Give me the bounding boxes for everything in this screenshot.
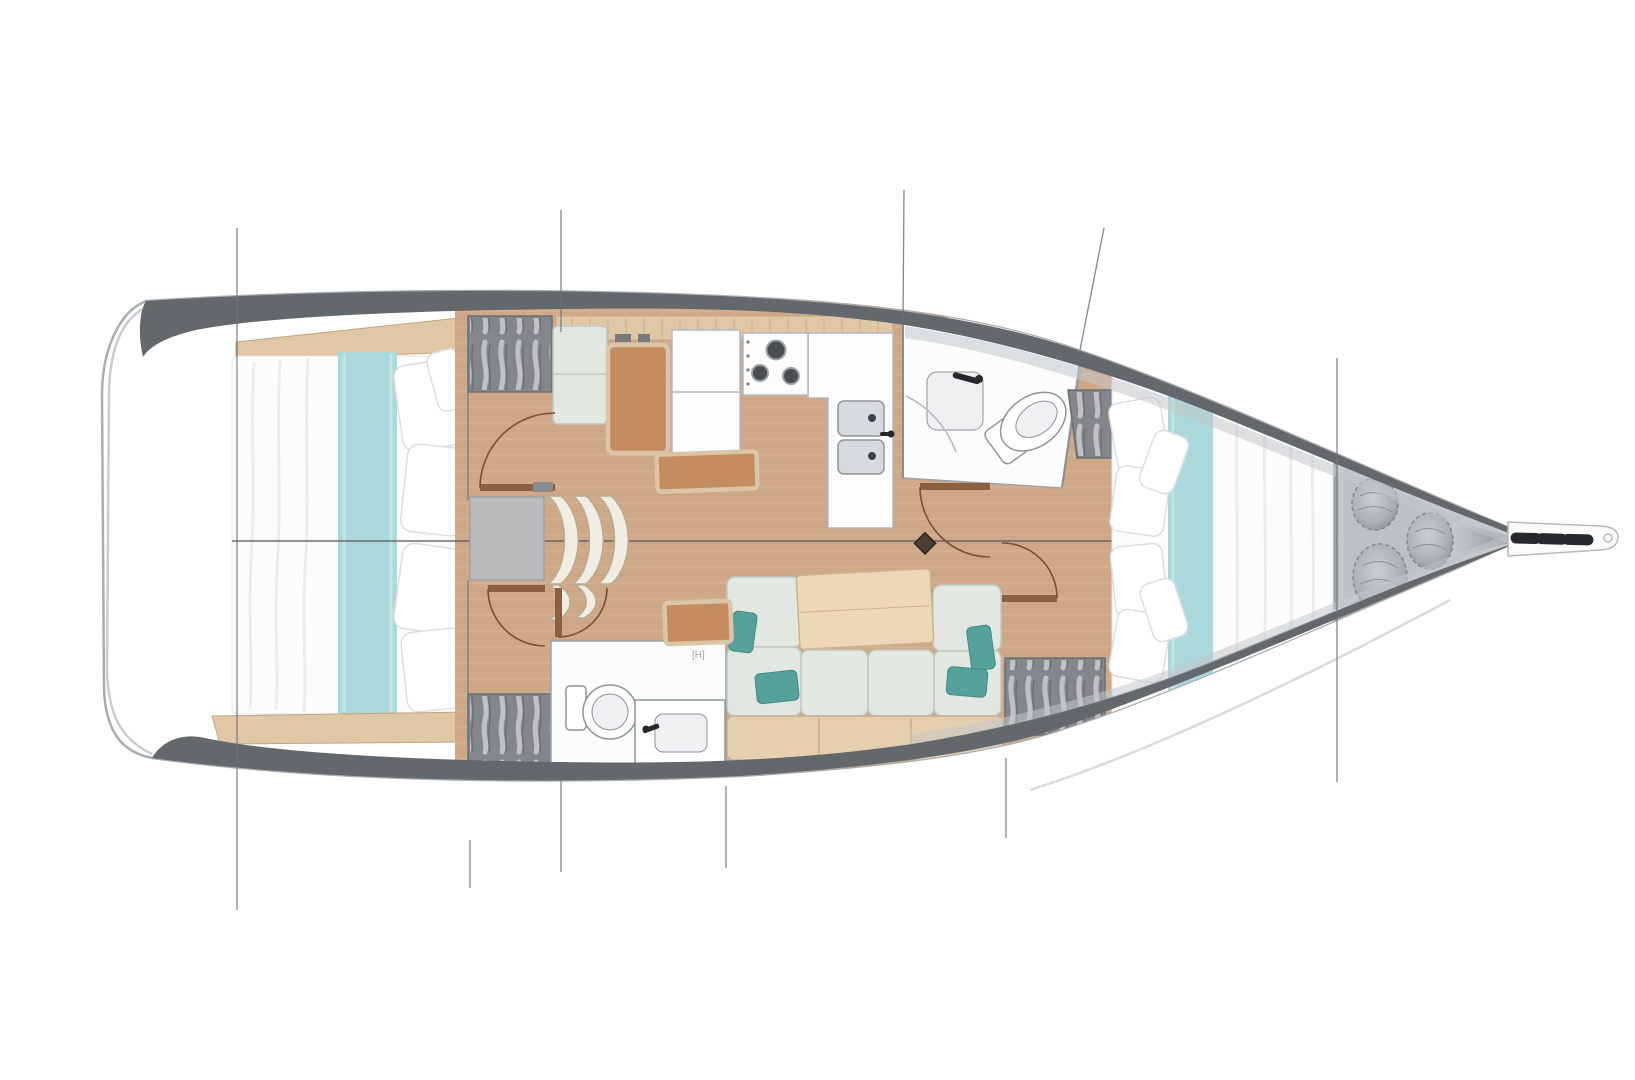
galley-bench [656,451,757,491]
stove-burner [752,365,768,381]
stove-burner [783,368,799,384]
hanging-locker-aft-top [468,316,552,392]
hanging-locker-fwd-top [1068,390,1112,458]
floor-plan-page: [H] [0,0,1635,1080]
door-leaf [555,588,562,637]
door-leaf [920,483,990,490]
aft-head-basin [655,714,707,752]
teal-pillow [755,670,800,704]
aft-cabin [212,317,473,744]
salon-bench [664,601,731,644]
sofa-cushion [801,650,868,716]
aft-foot-trim [212,712,468,744]
nav-seat-hinge [615,334,631,342]
bow-sprit [1508,522,1618,556]
door-leaf [488,585,545,592]
floor-plan-svg: [H] [0,0,1635,1080]
companionway-landing [470,497,544,580]
sofa-cushion [868,650,934,716]
head-unit-logo: [H] [692,650,705,661]
aft-head: [H] [551,641,726,767]
stove-burner [767,341,786,360]
nav-seat-hinge [638,334,650,342]
interior: [H] [212,300,1524,785]
aft-bed-runner [338,352,397,714]
nav-seat [608,345,668,453]
teal-pillow [946,666,988,697]
nav-settee [553,326,607,424]
galley-sink [838,401,884,436]
anchor-roller [1516,538,1592,540]
galley-sink [838,440,884,474]
door-leaf [1002,595,1057,602]
